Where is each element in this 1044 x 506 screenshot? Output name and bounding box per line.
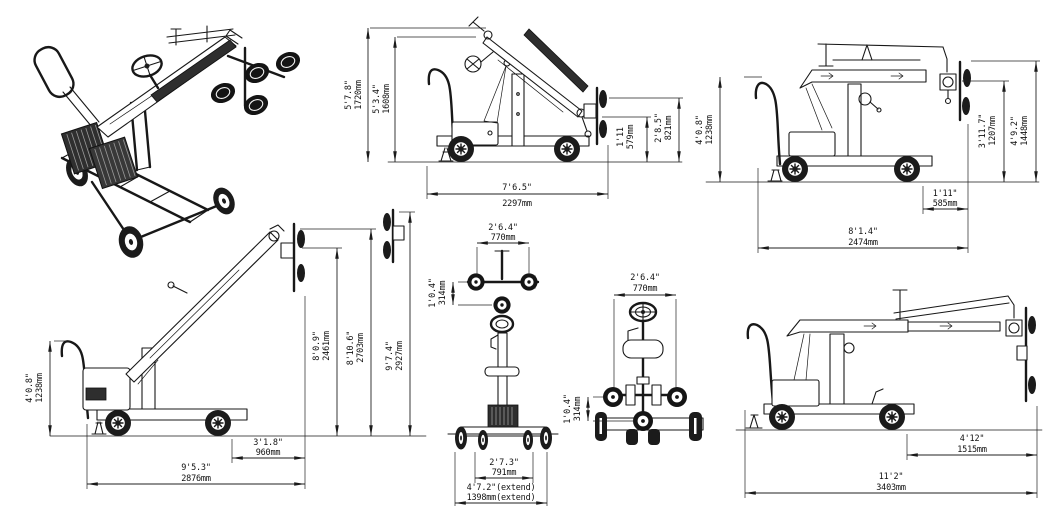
wheel <box>879 404 905 430</box>
view-side-boom-horizontal: 4'0.8" 1238mm 3'11.7" 1207mm 4'9.2" 1448… <box>694 18 1044 263</box>
wheel <box>554 136 580 162</box>
dim-ft-label: 4'0.8" <box>695 115 705 145</box>
boom <box>800 70 926 88</box>
technical-drawing-canvas: 5'7.8" 1720mm 5'3.4" 1608mm 1'11 579mm 2… <box>0 0 1044 506</box>
chassis <box>461 427 545 436</box>
lifter-side <box>50 210 426 436</box>
dim-mm-label: 585mm <box>933 199 958 209</box>
wheel <box>540 427 552 450</box>
wheel <box>448 136 474 162</box>
dim-ft-label: 1'11" <box>933 189 958 199</box>
dim-ft-label: 5'7.8" <box>344 80 354 110</box>
suction-cup <box>493 296 510 313</box>
dim-ft-label: 8'0.9" <box>312 331 322 361</box>
wheel <box>455 427 467 450</box>
outrigger-jack <box>92 422 106 434</box>
dim-ft-label: 11'2" <box>879 472 904 482</box>
dim-pad-center-height: 8'0.9" 2461mm <box>302 248 342 436</box>
grab-bar <box>485 367 519 376</box>
dim-mm-label: 2297mm <box>502 199 532 209</box>
dim-mm-label: 2474mm <box>848 238 878 248</box>
wheel <box>595 412 607 441</box>
boom <box>787 320 908 336</box>
dim-mm-label: 2703mm <box>356 333 366 363</box>
body <box>772 380 819 406</box>
suction-cup <box>1028 316 1036 334</box>
winch-wheel <box>844 343 854 353</box>
wheel <box>769 404 795 430</box>
wheel <box>105 410 131 436</box>
dim-mm-label: 314mm <box>438 281 448 306</box>
extension-arm-folded <box>818 44 947 72</box>
suction-cup <box>208 79 239 107</box>
dim-mm-label: 2461mm <box>322 331 332 361</box>
wheel <box>782 156 808 182</box>
dim-mm-label: 1608mm <box>382 84 392 114</box>
wheel <box>205 410 231 436</box>
suction-cup <box>603 387 623 407</box>
suction-cup <box>667 387 687 407</box>
dim-mm-label: 1448mm <box>1020 116 1030 146</box>
dim-mm-label: 1720mm <box>354 80 364 110</box>
dim-handle-height: 4'0.8" 1238mm <box>695 77 762 182</box>
dim-mm-label: 770mm <box>633 284 658 294</box>
dim-ft-label: 9'7.4" <box>385 341 395 371</box>
dim-ft-label: 5'3.4" <box>372 84 382 114</box>
dim-mm-label: 821mm <box>664 116 674 141</box>
dim-ft-label: 1'0.4" <box>428 278 438 308</box>
dim-mm-label: 2876mm <box>181 474 211 484</box>
suction-cup <box>962 97 970 115</box>
mast <box>830 334 844 404</box>
dim-ft-label: 4'7.2"(extend) <box>467 483 536 493</box>
hand-wheel <box>130 52 165 80</box>
push-handle <box>30 43 77 101</box>
dim-reach: 4'12" 1515mm <box>907 406 1037 460</box>
dim-ft-label: 2'6.4" <box>630 273 660 283</box>
dim-mm-label: 3403mm <box>876 483 906 493</box>
dim-mm-label: 1238mm <box>35 373 45 403</box>
crank-handle <box>491 335 498 349</box>
wheel <box>648 429 660 445</box>
dim-mm-label: 1398mm(extend) <box>467 493 536 503</box>
dim-ft-label: 1'0.4" <box>563 394 573 424</box>
view-side-boom-raised-45: 5'7.8" 1720mm 5'3.4" 1608mm 1'11 579mm 2… <box>330 2 690 217</box>
suction-cup <box>297 230 305 248</box>
dim-ft-label: 7'6.5" <box>502 183 532 193</box>
push-handle <box>756 83 780 164</box>
dim-ft-label: 2'6.4" <box>488 223 518 233</box>
dim-ft-label: 2'8.5" <box>654 113 664 143</box>
motor-block <box>488 405 518 427</box>
dim-ft-label: 8'10.6" <box>346 331 356 365</box>
view-rear: 2'6.4" 770mm 1'0.4" 314mm <box>560 258 737 473</box>
wheel <box>626 429 638 445</box>
suction-cup <box>273 48 304 76</box>
dim-ft-label: 9'5.3" <box>181 463 211 473</box>
suction-cup <box>520 273 537 290</box>
dim-mm-label: 770mm <box>491 233 516 243</box>
wheel <box>523 430 533 450</box>
dim-mm-label: 1207mm <box>988 116 998 146</box>
extension-linkage <box>893 290 1014 319</box>
mast <box>848 84 861 156</box>
pad-rotator <box>1006 320 1022 336</box>
view-side-boom-raised-max: 4'0.8" 1238mm 8'0.9" 2461mm 8'10.6" 2703… <box>2 196 432 506</box>
suction-cup <box>297 264 305 282</box>
dim-track-width: 2'7.3" 791mm <box>475 452 533 483</box>
lifter-rear <box>595 303 703 445</box>
wheel <box>478 430 488 450</box>
rotator-ring <box>491 316 513 332</box>
outrigger-jack <box>746 415 762 428</box>
dim-mm-label: 1238mm <box>705 115 715 145</box>
dim-mm-label: 2927mm <box>395 341 405 371</box>
body <box>789 132 835 156</box>
dim-ft-label: 4'12" <box>960 434 985 444</box>
pad-rotator <box>940 74 956 90</box>
dim-mm-label: 791mm <box>492 468 517 478</box>
view-side-boom-extended: 4'12" 1515mm 11'2" 3403mm <box>724 268 1044 506</box>
suction-cup <box>599 120 607 138</box>
dim-ft-label: 1'11 <box>616 127 626 147</box>
lifter-side <box>706 44 1039 182</box>
dim-ft-label: 3'1.8" <box>253 438 283 448</box>
suction-cup <box>1028 376 1036 394</box>
dim-pad-center-height: 3'11.7" 1207mm <box>962 81 1009 182</box>
dim-mm-label: 1515mm <box>957 445 987 455</box>
dim-pad-low-height: 1'11 579mm <box>602 117 651 162</box>
dim-mm-label: 579mm <box>626 125 636 150</box>
mast <box>512 74 524 146</box>
suction-cup <box>963 69 971 87</box>
wheel <box>894 156 920 182</box>
dim-ft-label: 3'11.7" <box>978 114 988 148</box>
lifter-side <box>388 17 682 162</box>
pad-max-height-position <box>383 210 404 262</box>
dim-mm-label: 314mm <box>573 397 583 422</box>
wheel <box>689 412 702 441</box>
dim-ft-label: 4'9.2" <box>1010 116 1020 146</box>
dim-pad-width: 2'6.4" 770mm <box>614 273 676 388</box>
suction-cup <box>599 90 607 108</box>
dim-rear-overhang: 3'1.8" 960mm <box>232 296 305 463</box>
push-handle <box>748 324 773 402</box>
dim-ft-label: 4'0.8" <box>25 373 35 403</box>
outrigger-jack <box>768 170 782 181</box>
dim-ft-label: 2'7.3" <box>489 458 519 468</box>
suction-cup <box>633 411 653 431</box>
dim-mm-label: 960mm <box>256 448 281 458</box>
lifter-front <box>448 251 558 450</box>
dim-rear-overhang: 1'11" 585mm <box>923 124 968 214</box>
dim-ft-label: 8'1.4" <box>848 227 878 237</box>
grab-loop <box>623 340 663 358</box>
boom-extension <box>908 322 1000 331</box>
